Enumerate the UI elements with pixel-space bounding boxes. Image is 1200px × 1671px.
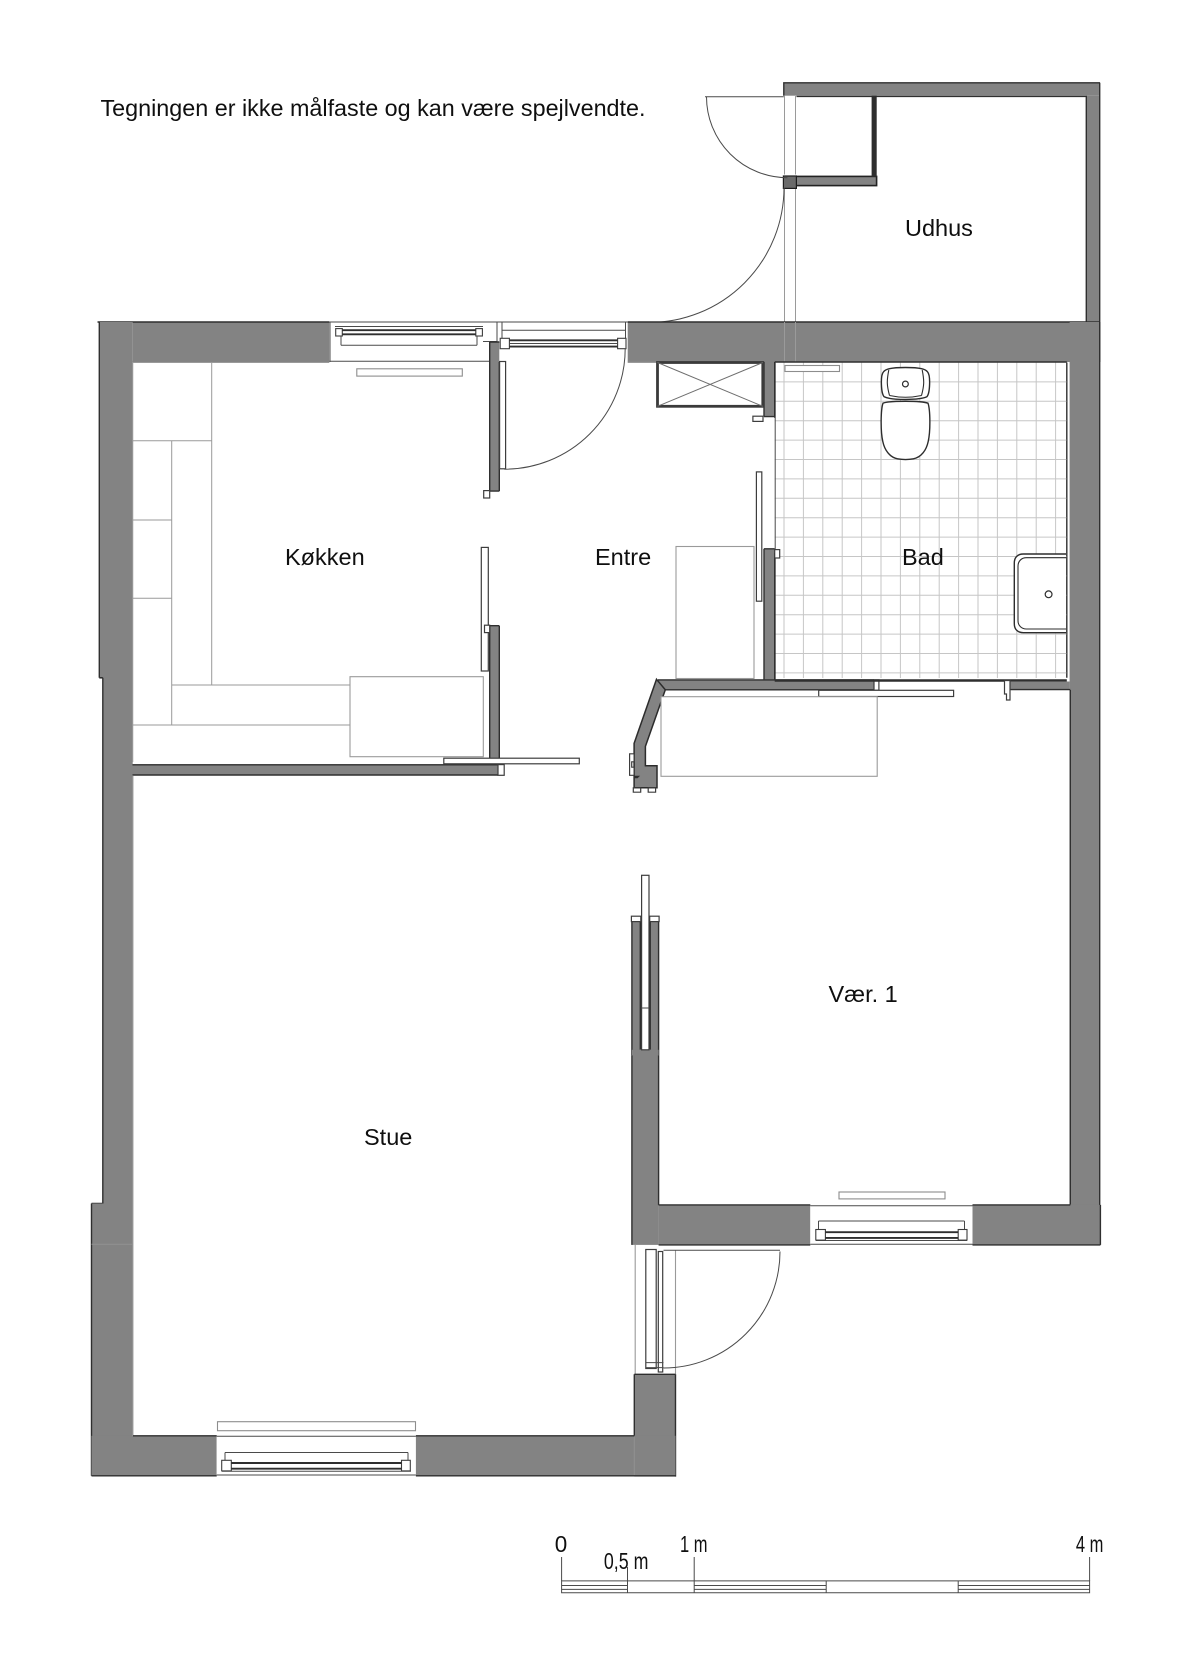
svg-text:0: 0 [555, 1531, 568, 1557]
svg-text:1 m: 1 m [680, 1531, 708, 1557]
svg-text:Stue: Stue [364, 1124, 412, 1150]
svg-text:Tegningen er ikke målfaste og: Tegningen er ikke målfaste og kan være s… [101, 95, 646, 121]
svg-text:Køkken: Køkken [285, 544, 365, 570]
svg-text:Bad: Bad [902, 544, 944, 570]
svg-text:4 m: 4 m [1076, 1531, 1104, 1557]
svg-text:0,5 m: 0,5 m [604, 1548, 649, 1574]
svg-text:Udhus: Udhus [905, 215, 973, 241]
svg-text:Entre: Entre [595, 544, 651, 570]
svg-text:Vær. 1: Vær. 1 [829, 981, 898, 1007]
